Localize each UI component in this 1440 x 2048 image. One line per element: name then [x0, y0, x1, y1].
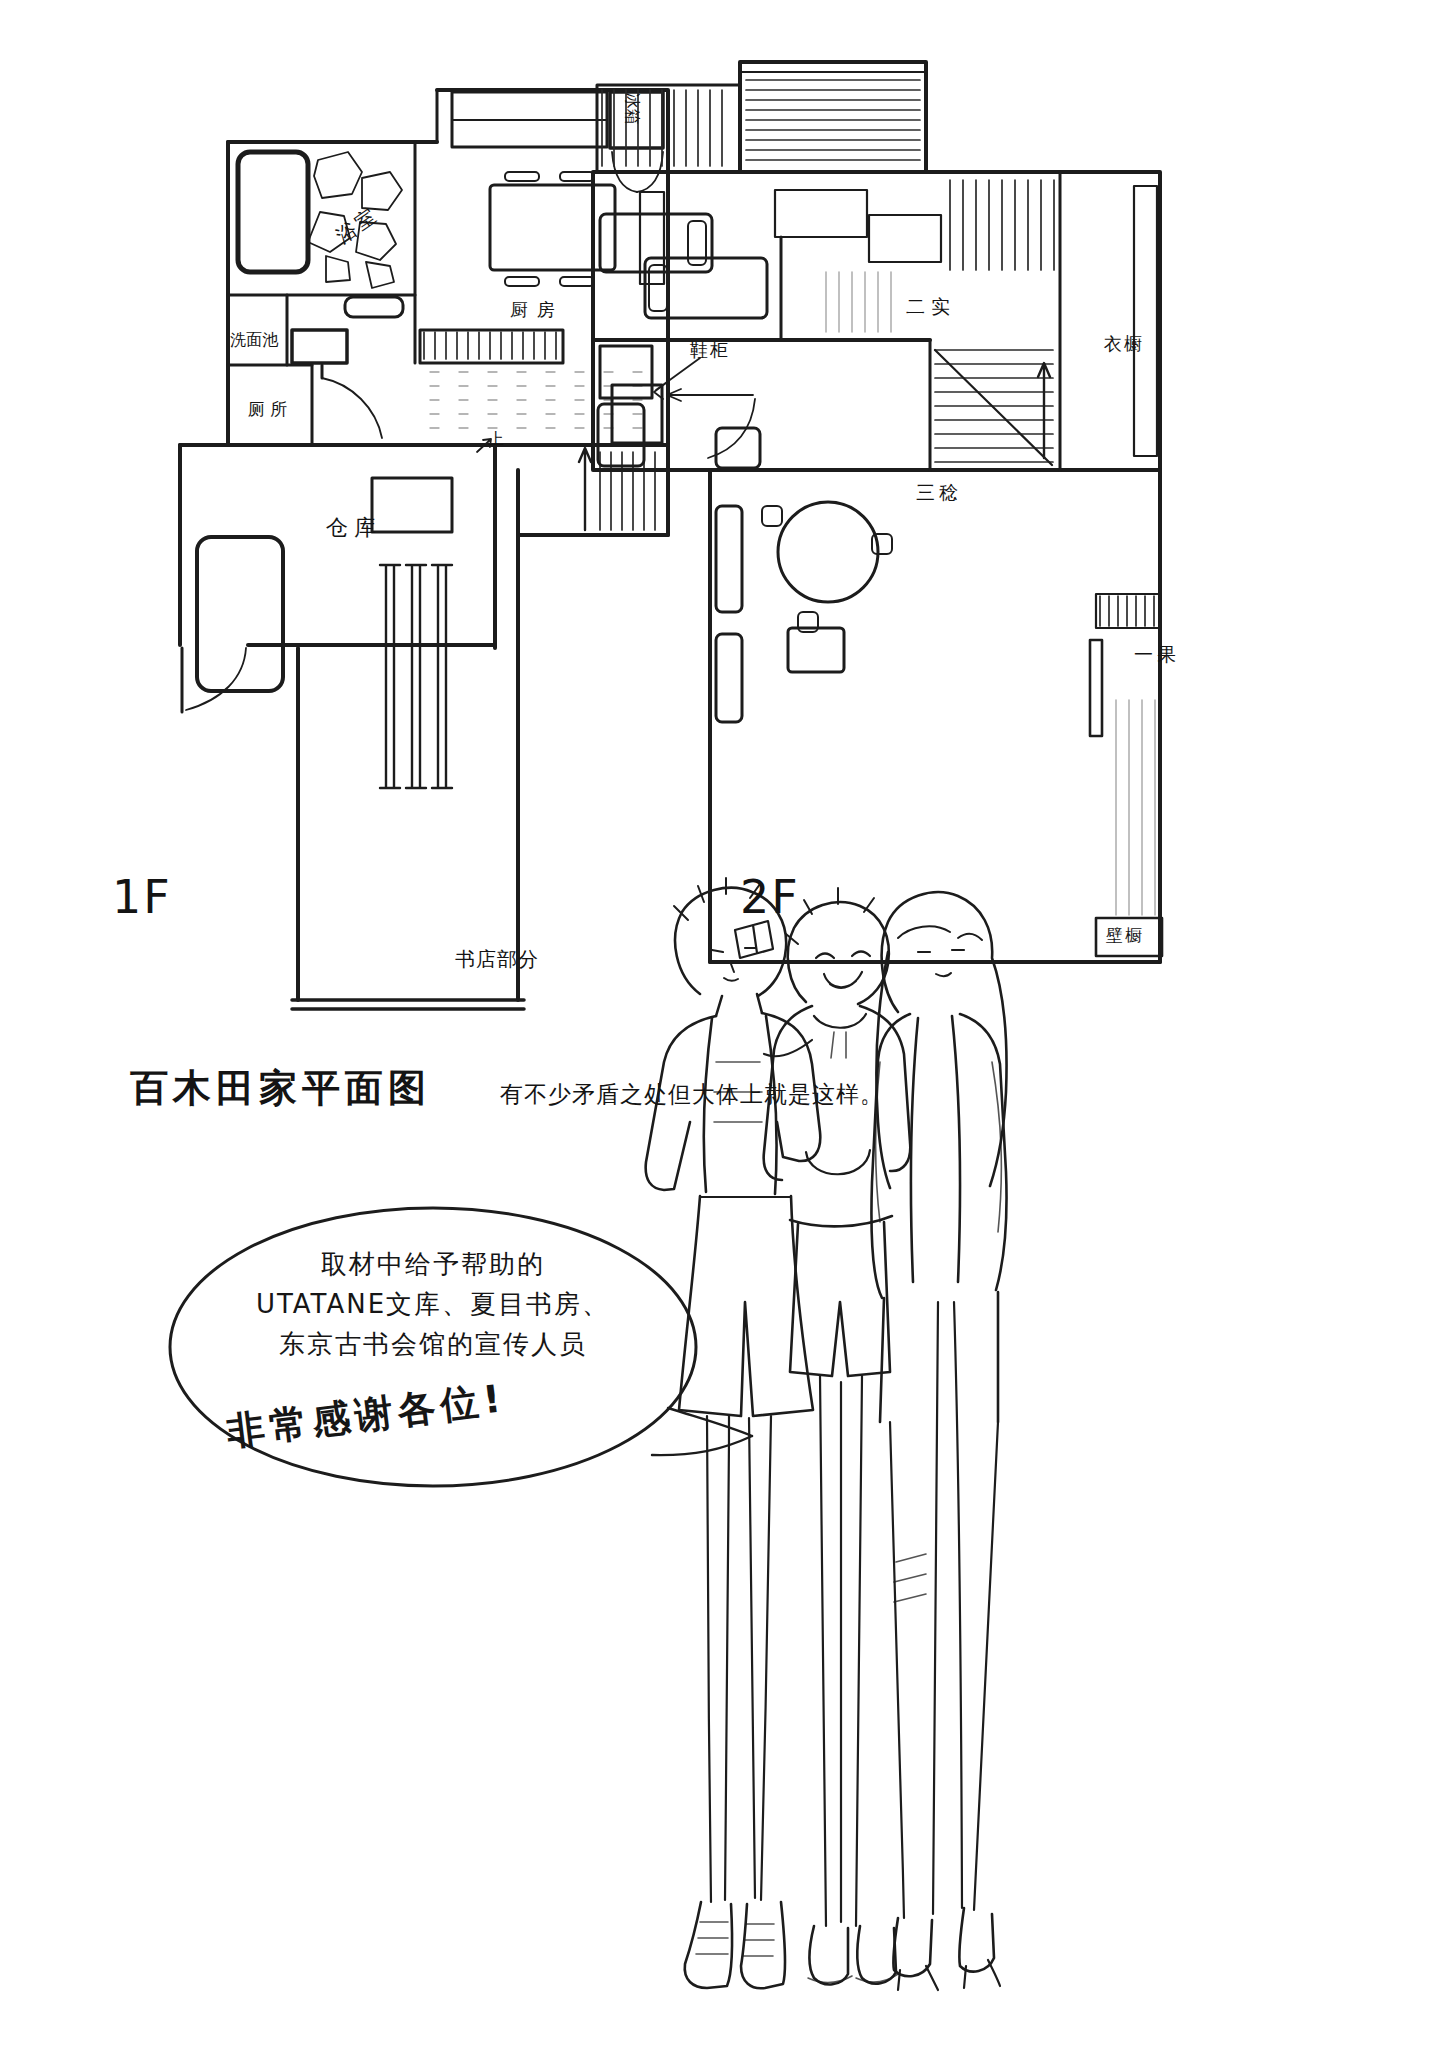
page-note: 有不少矛盾之处但大体上就是这样。 — [500, 1082, 884, 1107]
label-floor-1f: 1F — [112, 872, 172, 923]
label-stairs-up: 上 — [488, 430, 504, 448]
label-shoe-cabinet: 鞋柜 — [690, 340, 730, 360]
page: 冰箱 浴室 厨房 洗面池 厕所 鞋柜 仓库 上 书店部分 1F 二实 衣橱 三稔… — [0, 0, 1440, 2048]
floor1-plan — [180, 90, 755, 1009]
sketch-drawing — [0, 0, 1440, 2048]
label-room-ichika: 一果 — [1134, 644, 1180, 665]
bubble-line-1: 取材中给予帮助的 — [196, 1244, 670, 1284]
character-middle — [764, 888, 911, 1984]
label-room-futami: 二实 — [906, 296, 956, 317]
label-storage: 仓库 — [326, 516, 382, 540]
label-floor-2f: 2F — [740, 872, 800, 923]
label-room-mitsuru: 三稔 — [916, 482, 962, 503]
bubble-line-3: 东京古书会馆的宣传人员 — [196, 1324, 670, 1364]
label-fridge: 冰箱 — [623, 93, 641, 125]
bubble-line-2: UTATANE文库、夏目书房、 — [196, 1284, 670, 1324]
label-wardrobe: 衣橱 — [1104, 334, 1144, 354]
character-left — [646, 878, 821, 1988]
floor2-plan — [593, 62, 1162, 962]
characters-illustration — [646, 878, 1007, 1990]
label-closet: 壁橱 — [1106, 926, 1144, 945]
speech-bubble: 取材中给予帮助的 UTATANE文库、夏目书房、 东京古书会馆的宣传人员 — [196, 1244, 670, 1364]
character-right — [871, 892, 1006, 1990]
page-title: 百木田家平面图 — [130, 1068, 431, 1110]
label-toilet: 厕所 — [248, 400, 292, 419]
label-washbasin: 洗面池 — [230, 331, 278, 349]
bookshelves — [380, 565, 452, 788]
label-bookstore: 书店部分 — [455, 948, 539, 970]
label-kitchen: 厨房 — [510, 300, 564, 320]
